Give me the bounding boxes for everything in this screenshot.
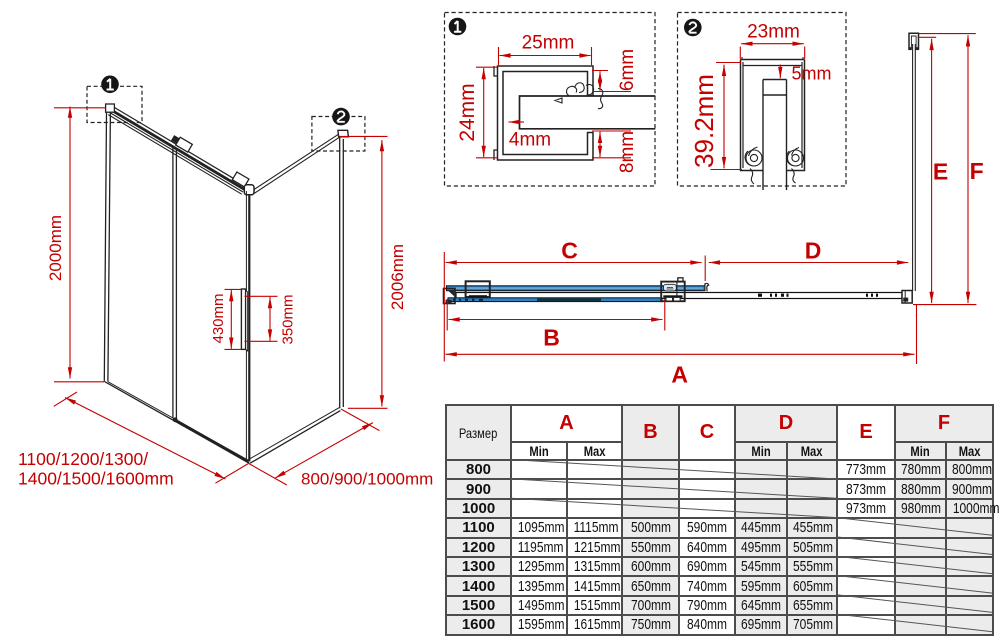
svg-text:1400/1500/1600mm: 1400/1500/1600mm (18, 469, 174, 489)
svg-text:D: D (805, 238, 822, 264)
svg-text:5mm: 5mm (792, 64, 832, 84)
svg-text:430mm: 430mm (210, 293, 227, 343)
svg-text:C: C (561, 238, 578, 264)
svg-text:4mm: 4mm (509, 130, 551, 151)
svg-text:8mm: 8mm (617, 131, 638, 173)
svg-text:B: B (543, 324, 560, 350)
svg-text:2000mm: 2000mm (46, 215, 65, 281)
svg-text:F: F (970, 158, 984, 184)
svg-text:2006mm: 2006mm (388, 244, 407, 310)
svg-text:25mm: 25mm (522, 33, 575, 54)
svg-text:6mm: 6mm (617, 49, 638, 91)
svg-text:A: A (671, 361, 688, 387)
svg-text:24mm: 24mm (456, 83, 479, 141)
svg-text:E: E (933, 159, 948, 185)
svg-text:350mm: 350mm (280, 294, 297, 344)
svg-text:1100/1200/1300/: 1100/1200/1300/ (18, 449, 148, 469)
svg-text:39.2mm: 39.2mm (689, 74, 719, 168)
svg-text:23mm: 23mm (747, 22, 800, 43)
svg-text:800/900/1000mm: 800/900/1000mm (301, 470, 433, 489)
